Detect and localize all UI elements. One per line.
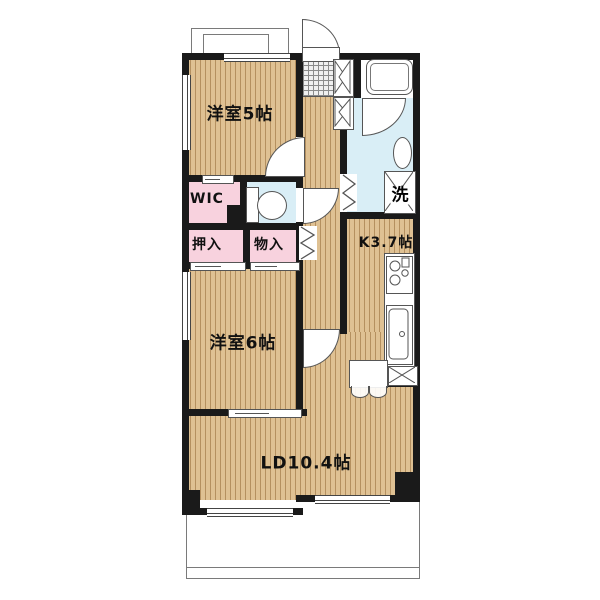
refrigerator-cabinet-icon (349, 360, 388, 388)
window-icon (182, 75, 191, 150)
cabinet-door-arc (369, 386, 387, 398)
floorplan-canvas: 洗 洋室5帖 WIC 押入 物入 洋室6帖 K3.7帖 LD10.4帖 (0, 0, 600, 600)
cabinet-door-arc (351, 386, 369, 398)
sliding-door-icon (190, 262, 246, 271)
living-dining-floor-left (185, 332, 303, 508)
bedroom6-label: 洋室6帖 (210, 329, 277, 354)
sliding-door-icon (250, 262, 300, 271)
monoire-label: 物入 (254, 234, 284, 254)
gas-stove-icon (386, 256, 413, 294)
bedroom5-label: 洋室5帖 (207, 100, 274, 125)
oshiire-label: 押入 (192, 234, 222, 254)
window-icon (207, 508, 293, 517)
living-dining-label: LD10.4帖 (261, 449, 352, 474)
bathtub-icon (366, 59, 413, 95)
folding-door-icon (299, 226, 317, 260)
shoe-cabinet-icon (333, 97, 354, 130)
window-icon (182, 272, 191, 340)
sliding-door-icon (228, 409, 302, 418)
wall-wic-pillar (227, 205, 240, 223)
folding-door-icon (342, 174, 357, 211)
sliding-door-icon (202, 175, 234, 184)
wall-corner-bottom-right (395, 472, 420, 502)
bathtub-inner-line (370, 63, 409, 91)
balcony-rail-line (187, 567, 419, 568)
wall-corner-bottom-left (182, 490, 200, 515)
washing-machine-icon: 洗 (384, 171, 416, 214)
shoe-cabinet-icon (333, 59, 354, 97)
door-opening (296, 188, 303, 222)
laundry-label: 洗 (391, 187, 410, 204)
wic-label: WIC (190, 191, 224, 207)
washbasin-icon (393, 137, 412, 169)
kitchen-sink-icon (386, 305, 413, 365)
window-icon (224, 53, 290, 62)
pipe-space-icon (388, 366, 418, 386)
window-icon (315, 495, 390, 504)
toilet-icon (257, 191, 287, 220)
kitchen-label: K3.7帖 (359, 232, 414, 252)
entrance-tile-icon (302, 57, 334, 97)
